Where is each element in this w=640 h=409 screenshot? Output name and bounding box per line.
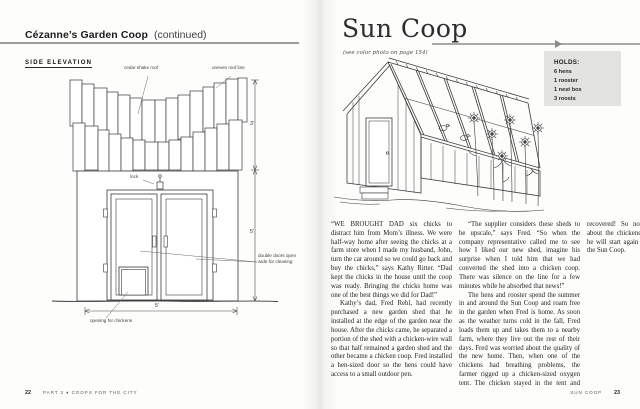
label-double-doors: double doors open wide for cleaning	[258, 253, 303, 264]
dim-width: 5'	[155, 303, 159, 309]
title-rule-arrow-icon	[555, 40, 562, 48]
wall-and-doors	[52, 171, 278, 302]
body-paragraph: “WE BROUGHT DAD six chicks to distract h…	[331, 221, 452, 300]
right-footer-text: SUN COOP	[570, 390, 602, 395]
glass-roof	[388, 62, 540, 171]
coop-continued-title: Cézanne’s Garden Coop	[25, 29, 148, 41]
holds-item: 1 nest box	[554, 86, 617, 95]
shed-door	[366, 118, 392, 186]
title-rule	[432, 43, 640, 45]
dim-roof-height: 3'	[250, 121, 254, 127]
holds-item: 3 roosts	[554, 95, 617, 104]
holds-item: 6 hens	[554, 68, 617, 77]
label-opening-for-chickens: opening for chickens	[90, 318, 132, 324]
steps	[360, 187, 388, 199]
continued-label: (continued)	[154, 29, 207, 41]
body-paragraph: “The supplier considers these sheds to b…	[459, 221, 580, 292]
book-spread: Cézanne’s Garden Coop (continued) SIDE E…	[0, 0, 640, 409]
left-page-header: Cézanne’s Garden Coop (continued)	[25, 29, 207, 41]
label-lock: lock	[130, 174, 138, 180]
header-rule	[0, 42, 299, 44]
holds-item: 1 rooster	[554, 77, 617, 86]
page-title: Sun Coop	[342, 14, 468, 43]
left-footer: 22PART 2 ♦ COOPS FOR THE CITY	[25, 390, 137, 396]
holds-heading: HOLDS:	[554, 58, 617, 68]
label-uneven-roof-line: uneven roof line	[212, 65, 245, 71]
side-elevation-drawing	[30, 68, 300, 348]
left-footer-text: PART 2 ♦ COOPS FOR THE CITY	[43, 390, 137, 395]
holds-box: HOLDS: 6 hens 1 rooster 1 nest box 3 roo…	[544, 51, 621, 106]
shingle-band	[70, 78, 247, 172]
left-page: Cézanne’s Garden Coop (continued) SIDE E…	[0, 0, 320, 409]
sun-coop-illustration	[326, 56, 554, 218]
body-paragraph: Kathy’s dad, Fred Rehl, had recently pur…	[331, 300, 452, 379]
right-page: Sun Coop (see color photo on page 154) H…	[320, 0, 640, 409]
side-elevation-label: SIDE ELEVATION	[25, 60, 92, 68]
label-cedar-shake-roof: cedar shake roof	[124, 65, 158, 71]
knee-wall	[421, 137, 540, 196]
body-text-columns: “WE BROUGHT DAD six chicks to distract h…	[331, 221, 580, 391]
dim-wall-height: 5'	[250, 229, 254, 235]
right-footer: SUN COOP23	[570, 390, 620, 396]
right-page-number: 23	[614, 390, 620, 396]
left-page-number: 22	[25, 390, 31, 396]
